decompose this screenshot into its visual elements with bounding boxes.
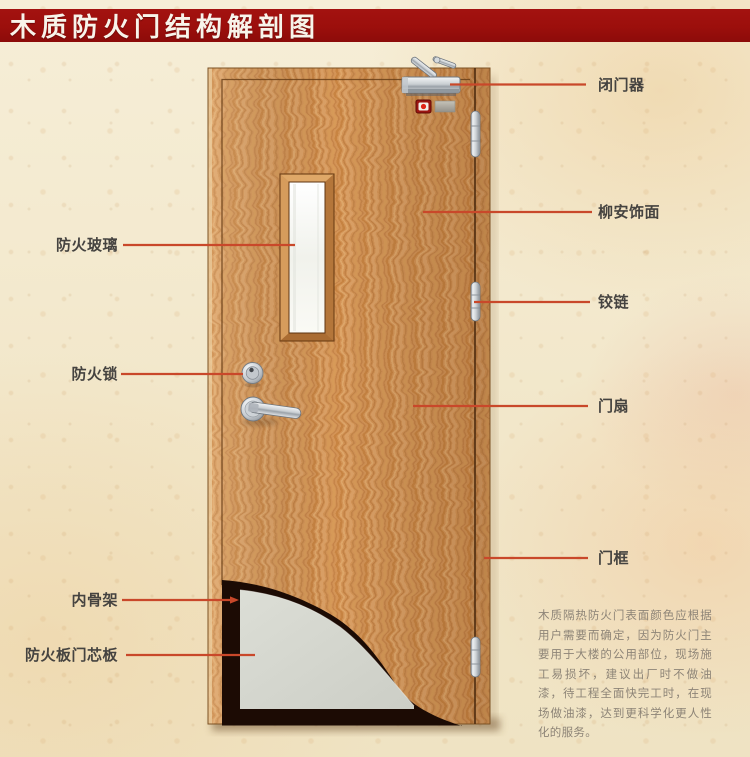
label-hinge: 铰链 <box>598 294 629 310</box>
vision-panel <box>280 174 334 341</box>
label-fire-board-core: 防火板门芯板 <box>0 647 118 663</box>
strike-plate <box>435 101 455 112</box>
label-door-frame: 门框 <box>598 550 629 566</box>
label-fire-lock: 防火锁 <box>0 366 118 382</box>
alarm-indicator <box>416 100 431 113</box>
page-title: 木质防火门结构解剖图 <box>0 7 320 44</box>
label-door-closer: 闭门器 <box>598 77 645 93</box>
label-door-leaf: 门扇 <box>598 398 629 414</box>
label-lauan-veneer: 柳安饰面 <box>598 204 660 220</box>
label-fire-glass: 防火玻璃 <box>0 237 118 253</box>
door-frame-strip <box>470 68 490 724</box>
description-note: 木质隔热防火门表面颜色应根据用户需要而确定，因为防火门主要用于大楼的公用部位，现… <box>538 606 712 743</box>
hinge-bottom <box>471 637 480 677</box>
door-left-edge-highlight <box>208 68 212 724</box>
infographic-page: 木质防火门结构解剖图 防火玻璃 防火锁 内骨架 防火板门芯板 闭门器 柳安饰面 … <box>0 0 750 757</box>
label-inner-skeleton: 内骨架 <box>0 592 118 608</box>
title-banner: 木质防火门结构解剖图 <box>0 9 750 42</box>
closer-arm-pivot <box>434 57 440 63</box>
hinge-top <box>471 111 480 157</box>
